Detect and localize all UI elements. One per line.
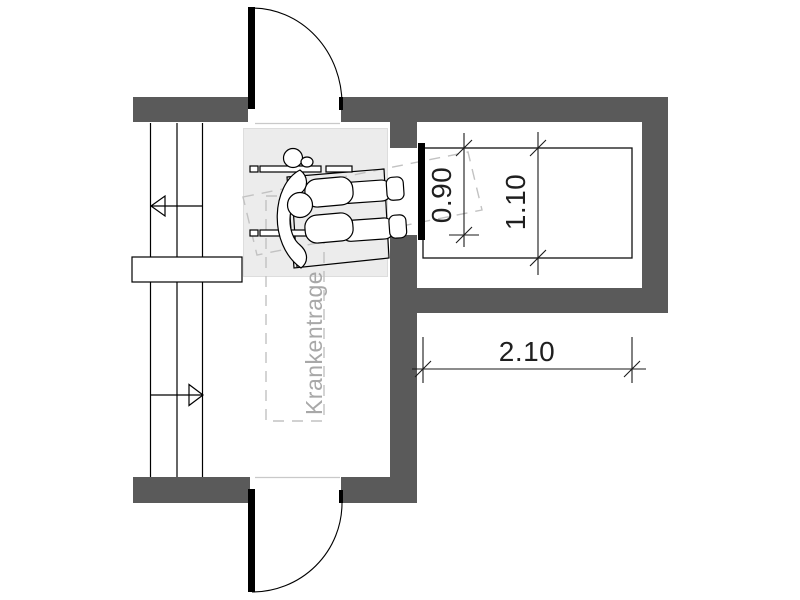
plan-linework bbox=[0, 0, 800, 600]
door-leaf bbox=[248, 489, 255, 592]
dim-label-door-width: 0.90 bbox=[427, 145, 457, 245]
door-jamb-stop bbox=[339, 97, 343, 110]
door-jamb-stop bbox=[339, 490, 343, 503]
dim-label-car-width: 1.10 bbox=[501, 152, 531, 252]
door-swing-arc bbox=[252, 503, 342, 592]
occupant-head bbox=[288, 193, 313, 218]
occupant-back bbox=[277, 170, 306, 268]
door-swing-symbol-top bbox=[248, 7, 343, 124]
attendant-head bbox=[284, 149, 303, 168]
door-leaf bbox=[248, 7, 255, 109]
elevator-door-leaf bbox=[418, 143, 425, 240]
stair-landing bbox=[132, 257, 242, 282]
staircase bbox=[132, 123, 242, 477]
wheelchair-user-symbol bbox=[250, 149, 407, 269]
occupant-lap bbox=[304, 212, 354, 244]
door-swing-arc bbox=[252, 8, 342, 104]
attendant-shoulder bbox=[301, 157, 313, 167]
floor-plan: 0.90 1.10 2.10 Krankentrage bbox=[0, 0, 800, 600]
dimension-car-width bbox=[530, 132, 546, 275]
door-swing-symbol-bottom bbox=[248, 478, 343, 593]
dim-label-car-depth: 2.10 bbox=[467, 337, 587, 367]
